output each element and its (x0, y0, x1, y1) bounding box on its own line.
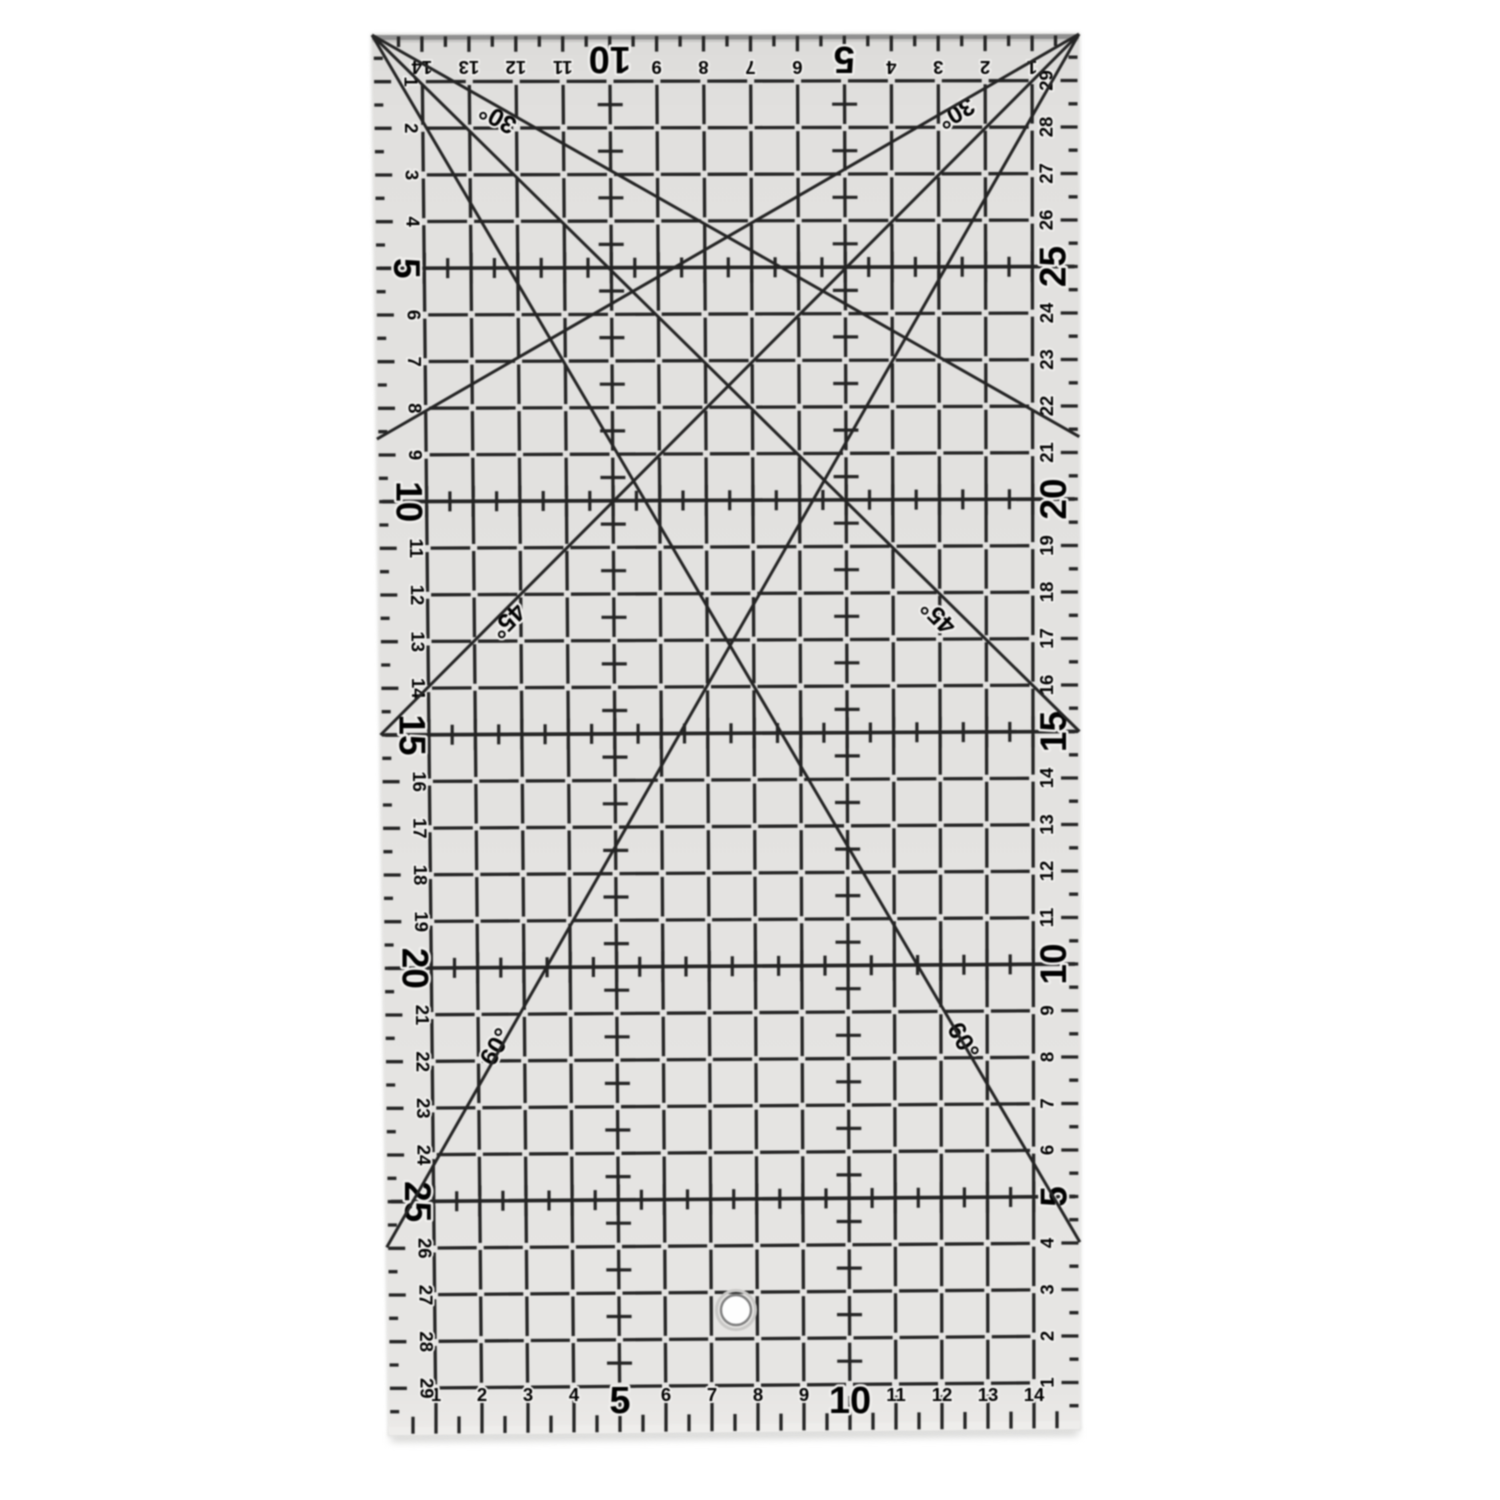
svg-text:19: 19 (411, 911, 432, 932)
svg-text:27: 27 (1036, 163, 1057, 184)
svg-text:4: 4 (402, 217, 423, 228)
svg-text:8: 8 (753, 1384, 763, 1405)
svg-text:4: 4 (569, 1384, 580, 1405)
svg-text:2: 2 (477, 1384, 487, 1405)
svg-text:14: 14 (1036, 767, 1057, 788)
svg-text:26: 26 (415, 1238, 436, 1259)
svg-text:20: 20 (394, 948, 435, 989)
svg-text:3: 3 (933, 57, 943, 78)
svg-text:1: 1 (1037, 1377, 1058, 1387)
svg-text:4: 4 (1037, 1237, 1058, 1248)
svg-text:20: 20 (1033, 478, 1074, 519)
svg-text:5: 5 (386, 258, 427, 279)
svg-text:19: 19 (1036, 535, 1057, 556)
svg-text:10: 10 (389, 481, 430, 522)
svg-text:22: 22 (413, 1051, 434, 1072)
svg-text:13: 13 (1036, 814, 1057, 835)
svg-text:10: 10 (1033, 943, 1074, 984)
svg-text:28: 28 (416, 1331, 437, 1352)
svg-text:13: 13 (459, 57, 480, 78)
svg-text:5: 5 (609, 1380, 630, 1422)
svg-text:18: 18 (1036, 582, 1057, 603)
svg-text:23: 23 (413, 1098, 434, 1119)
svg-text:23: 23 (1036, 349, 1057, 370)
svg-text:10: 10 (829, 1380, 871, 1422)
svg-text:12: 12 (1036, 861, 1057, 882)
svg-text:13: 13 (407, 631, 428, 652)
svg-text:9: 9 (651, 57, 661, 78)
svg-text:11: 11 (1036, 908, 1057, 928)
svg-text:29: 29 (416, 1378, 437, 1399)
svg-text:6: 6 (792, 57, 802, 78)
svg-text:10: 10 (589, 38, 631, 80)
svg-text:21: 21 (1036, 442, 1057, 463)
svg-text:12: 12 (506, 57, 527, 78)
svg-text:8: 8 (698, 57, 708, 78)
svg-text:4: 4 (885, 57, 896, 78)
svg-text:2: 2 (980, 57, 990, 78)
svg-text:3: 3 (523, 1384, 533, 1405)
svg-text:7: 7 (745, 57, 755, 78)
svg-text:9: 9 (799, 1384, 809, 1405)
svg-text:15: 15 (392, 714, 433, 755)
svg-text:2: 2 (401, 123, 422, 133)
svg-text:17: 17 (1036, 628, 1057, 649)
svg-text:3: 3 (1037, 1284, 1058, 1294)
svg-text:6: 6 (403, 310, 424, 320)
svg-text:7: 7 (707, 1384, 717, 1405)
svg-text:11: 11 (553, 57, 573, 78)
svg-text:28: 28 (1036, 117, 1057, 138)
svg-text:2: 2 (1037, 1331, 1058, 1341)
svg-text:7: 7 (1036, 1098, 1057, 1108)
svg-text:5: 5 (834, 38, 855, 80)
svg-text:12: 12 (932, 1384, 953, 1405)
svg-text:18: 18 (410, 865, 431, 886)
svg-text:25: 25 (1033, 246, 1074, 287)
svg-text:26: 26 (1036, 210, 1057, 231)
svg-text:24: 24 (1036, 302, 1057, 323)
svg-text:27: 27 (415, 1285, 436, 1306)
svg-text:6: 6 (1036, 1145, 1057, 1155)
svg-text:16: 16 (409, 771, 430, 792)
svg-text:11: 11 (886, 1384, 906, 1405)
svg-text:8: 8 (1036, 1052, 1057, 1062)
svg-text:9: 9 (405, 450, 426, 460)
svg-text:21: 21 (412, 1005, 433, 1026)
svg-text:9: 9 (1036, 1005, 1057, 1015)
svg-text:7: 7 (404, 357, 425, 367)
svg-text:11: 11 (406, 539, 427, 559)
svg-text:17: 17 (410, 818, 431, 839)
svg-text:13: 13 (978, 1384, 999, 1405)
svg-text:6: 6 (661, 1384, 671, 1405)
svg-text:15: 15 (1033, 711, 1074, 752)
svg-text:3: 3 (402, 170, 423, 180)
svg-text:12: 12 (407, 585, 428, 606)
svg-text:24: 24 (414, 1145, 435, 1166)
